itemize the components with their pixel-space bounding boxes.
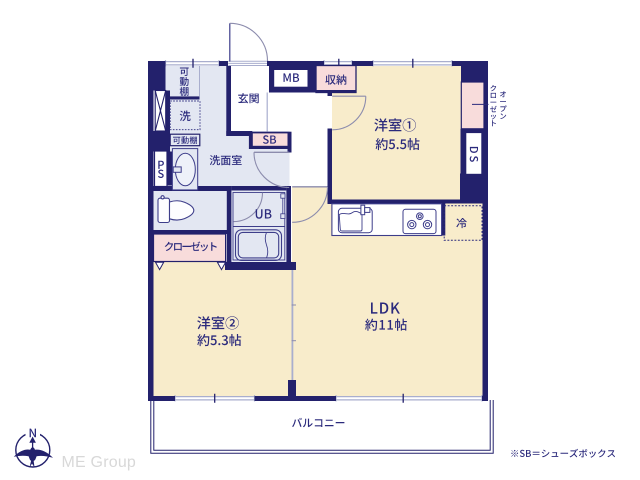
svg-text:ME Group: ME Group <box>62 454 137 471</box>
